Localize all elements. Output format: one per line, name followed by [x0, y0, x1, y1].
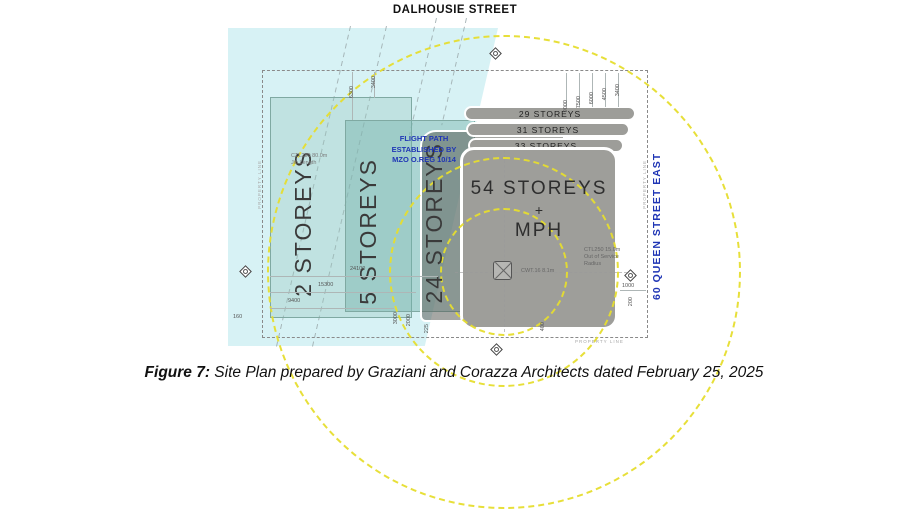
label-54-storeys: 54 STOREYS + MPH: [460, 178, 618, 242]
property-line-text-left: PROPERTY LINE: [257, 160, 262, 209]
label-5-storeys: 5 STOREYS: [355, 158, 382, 305]
dim-line: [270, 292, 416, 293]
property-line-text-right: PROPERTY LINE: [642, 160, 647, 209]
dim-225: 225: [424, 324, 430, 333]
dim-3000: 3000: [393, 312, 399, 324]
oos-note-line3: Radius: [584, 261, 620, 268]
dim-9000: 9000: [563, 100, 569, 112]
crane-base-symbol: [493, 261, 512, 280]
label-24-storeys: 24 STOREYS: [421, 142, 448, 303]
dim-15300: 15300: [318, 282, 333, 288]
jib-length-note: CTL280 80.0m Jib Length: [291, 153, 327, 167]
dim-200: 200: [628, 297, 634, 306]
dim-9400: 9400: [288, 298, 300, 304]
flight-path-note: FLIGHT PATH ESTABLISHED BY MZO O.REG 10/…: [378, 134, 470, 166]
dim-6000: 6000: [589, 92, 595, 104]
figure-caption-text: Site Plan prepared by Graziani and Coraz…: [210, 364, 763, 381]
dim-2000: 2000: [406, 314, 412, 326]
counterweight-note: CWT.16 8.1m: [521, 268, 554, 275]
dim-line: [270, 308, 394, 309]
dim-line: [620, 290, 646, 291]
tower-storeys-text: 54 STOREYS: [460, 178, 618, 200]
jib-note-line1: CTL280 80.0m: [291, 153, 327, 160]
label-2-storeys: 2 STOREYS: [290, 150, 317, 297]
dim-6300: 6300: [349, 86, 355, 98]
flight-path-note-line2: ESTABLISHED BY: [378, 145, 470, 156]
oos-note-line2: Out of Service: [584, 254, 620, 261]
jib-note-line2: Jib Length: [291, 160, 327, 167]
dim-160: 160: [233, 314, 242, 320]
dim-3400-right: 3400: [615, 84, 621, 96]
flight-path-note-line3: MZO O.REG 10/14: [378, 155, 470, 166]
figure-caption-label: Figure 7:: [145, 364, 210, 381]
dim-4500: 4500: [602, 88, 608, 100]
street-label-queen-east: 60 QUEEN STREET EAST: [651, 130, 663, 300]
tower-mph-text: MPH: [460, 220, 618, 242]
out-of-service-note: CTL250 15.0m Out of Service Radius: [584, 247, 620, 268]
site-plan-figure: DALHOUSIE STREET 29 STOREYS 31 STOREYS 3…: [0, 0, 908, 410]
street-label-dalhousie: DALHOUSIE STREET: [330, 4, 580, 16]
flight-path-note-line1: FLIGHT PATH: [378, 134, 470, 145]
dim-7500: 7500: [576, 96, 582, 108]
dim-1000: 1000: [622, 283, 634, 289]
dim-3400-left: 3400: [371, 76, 377, 88]
dim-24100: 24100: [350, 266, 365, 272]
property-line-text-bottom: PROPERTY LINE: [575, 339, 624, 344]
dim-400: 400: [540, 322, 546, 331]
oos-note-line1: CTL250 15.0m: [584, 247, 620, 254]
tower-plus-text: +: [460, 202, 618, 218]
figure-caption: Figure 7: Site Plan prepared by Graziani…: [0, 364, 908, 382]
dim-line: [270, 276, 438, 277]
